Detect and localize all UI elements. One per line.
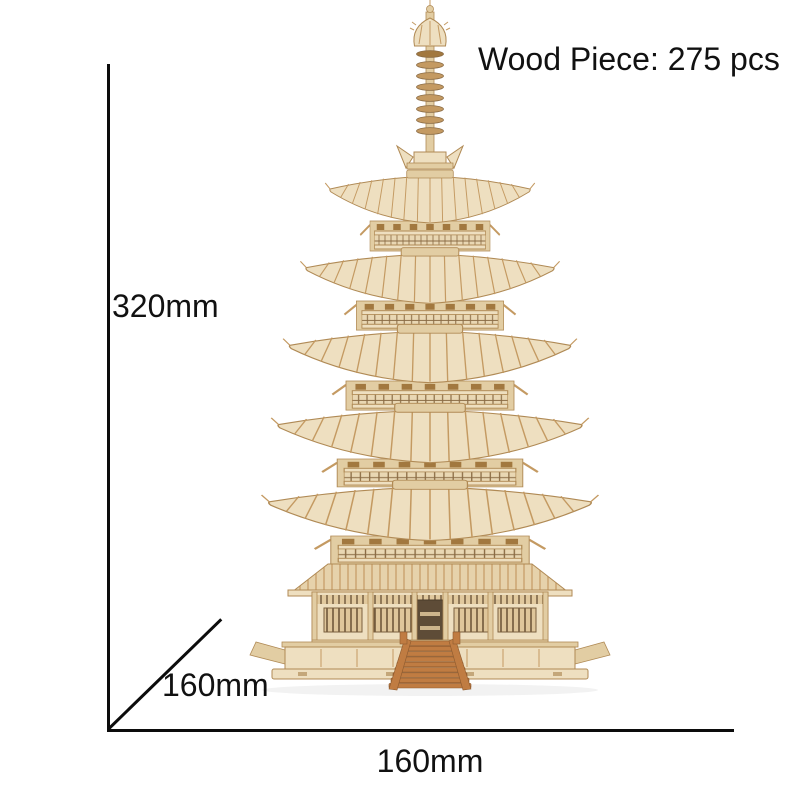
height-dimension-label: 320mm	[112, 289, 219, 324]
roof-tier-3	[283, 324, 577, 382]
roof-tier-2	[300, 248, 559, 304]
width-dimension-line	[107, 729, 734, 732]
pent-roof	[288, 564, 572, 596]
width-dimension-label: 160mm	[377, 744, 484, 779]
product-dimension-image: 320mm 160mm 160mm Wood Piece: 275 pcs	[0, 0, 800, 800]
roof-tier-1	[325, 170, 535, 223]
pagoda-model-image	[240, 0, 620, 700]
balcony-band-1	[360, 221, 500, 251]
lattice-window	[454, 608, 492, 632]
doorway	[417, 600, 443, 644]
spire	[397, 0, 463, 169]
height-dimension-line	[107, 64, 110, 730]
lattice-window	[498, 608, 536, 632]
staircase	[389, 632, 471, 690]
lattice-window	[324, 608, 362, 632]
roof-tier-5	[262, 480, 599, 540]
ground-floor	[312, 592, 548, 646]
roof-tier-4	[271, 403, 589, 462]
lattice-window	[374, 608, 412, 632]
